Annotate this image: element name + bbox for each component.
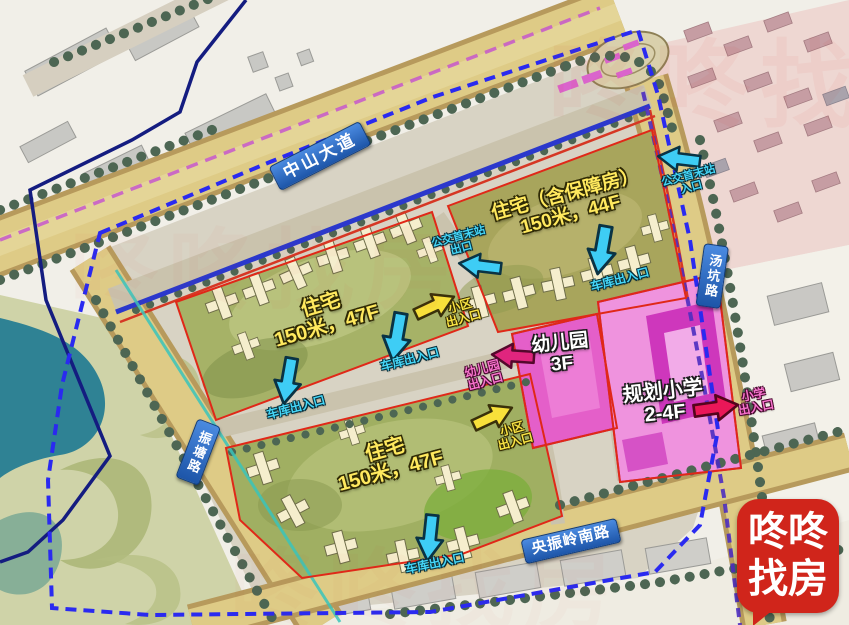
site-plan-map: 咚咚找房 咚咚找房 咚咚找房 中山大道 汤坑路 振塘路 央振岭南路 住宅（含保障… — [0, 0, 849, 625]
logo-text-line: 咚咚 — [748, 509, 828, 556]
dongdong-zhaofang-logo: 咚咚 找房 — [737, 499, 839, 613]
parcel-label-school: 规划小学 2-4F — [622, 377, 706, 430]
map-canvas — [0, 0, 849, 625]
logo-text-line: 找房 — [748, 556, 828, 603]
logo-bubble-tail — [753, 610, 773, 625]
parcel-label-kindergarten: 幼儿园 3F — [530, 330, 591, 378]
